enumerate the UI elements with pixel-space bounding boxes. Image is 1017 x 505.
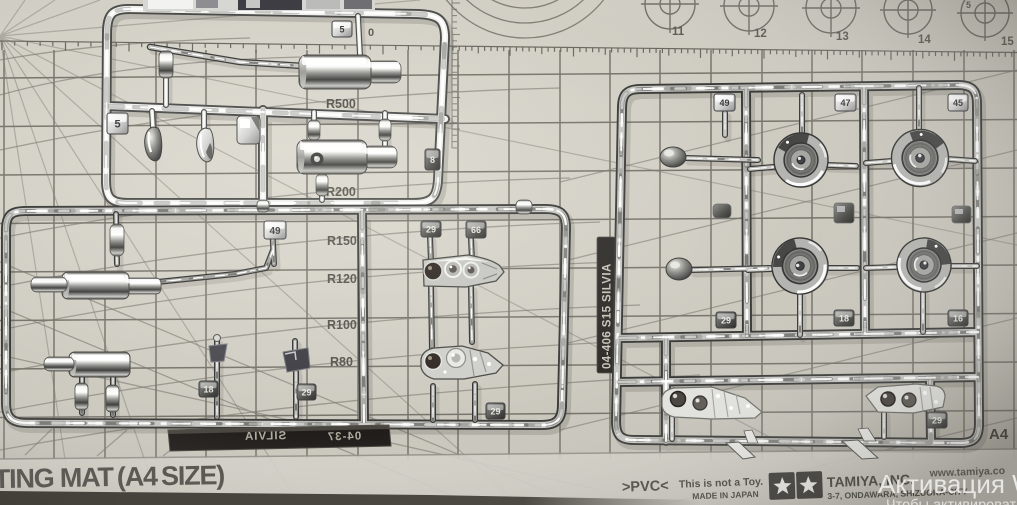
svg-text:0: 0	[368, 27, 374, 39]
svg-text:11: 11	[672, 26, 685, 38]
svg-text:15: 15	[1001, 36, 1014, 48]
svg-text:12: 12	[754, 28, 767, 40]
svg-text:8: 8	[430, 155, 435, 165]
svg-text:04-406 S15 SILVIA: 04-406 S15 SILVIA	[602, 263, 614, 369]
svg-text:13: 13	[836, 31, 849, 43]
svg-text:R150: R150	[327, 234, 357, 248]
svg-text:66: 66	[471, 225, 481, 235]
svg-text:R120: R120	[327, 272, 357, 286]
svg-text:18: 18	[839, 313, 849, 323]
svg-text:49: 49	[719, 98, 729, 108]
svg-text:5: 5	[966, 0, 971, 10]
svg-text:45: 45	[953, 98, 963, 108]
svg-text:TING MAT (A4 SIZE): TING MAT (A4 SIZE)	[0, 460, 224, 494]
svg-text:49: 49	[269, 226, 281, 237]
svg-text:47: 47	[840, 98, 850, 108]
svg-text:14: 14	[918, 34, 931, 46]
svg-text:18: 18	[203, 384, 213, 394]
svg-text:Чтобы активировать: Чтобы активировать	[886, 498, 1017, 505]
svg-text:A4: A4	[989, 426, 1009, 443]
svg-text:R500: R500	[326, 97, 356, 111]
svg-text:29: 29	[721, 315, 731, 325]
svg-text:29: 29	[301, 387, 311, 397]
svg-text:Активация Win: Активация Win	[878, 469, 1017, 499]
svg-text:R200: R200	[326, 185, 356, 199]
svg-text:29: 29	[932, 415, 942, 425]
svg-text:5: 5	[339, 24, 344, 34]
svg-text:16: 16	[953, 313, 963, 323]
svg-text:29: 29	[426, 224, 436, 234]
svg-text:>PVC<: >PVC<	[622, 478, 669, 496]
svg-text:R100: R100	[327, 318, 357, 332]
svg-text:SILVIA: SILVIA	[244, 430, 286, 443]
svg-text:5: 5	[114, 119, 120, 131]
svg-text:04-37: 04-37	[327, 431, 362, 444]
svg-text:29: 29	[490, 406, 500, 416]
svg-text:R80: R80	[330, 355, 353, 369]
